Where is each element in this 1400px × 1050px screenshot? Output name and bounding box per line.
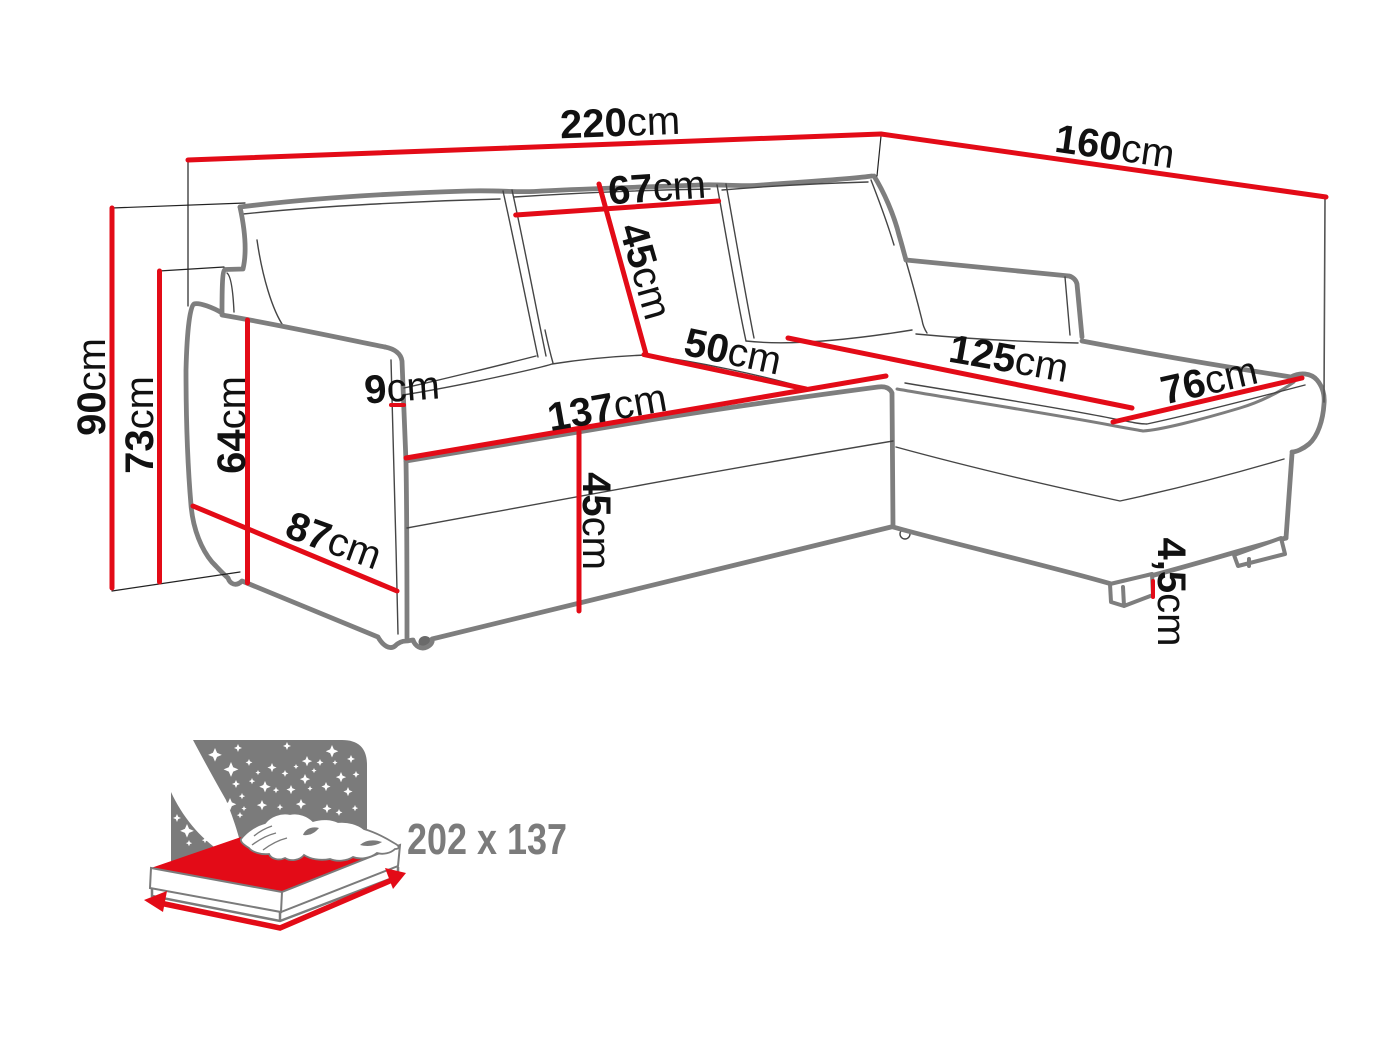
- svg-text:4,5cm: 4,5cm: [1149, 538, 1193, 647]
- svg-text:67cm: 67cm: [607, 163, 708, 214]
- svg-text:73cm: 73cm: [118, 376, 162, 474]
- svg-text:90cm: 90cm: [70, 338, 114, 436]
- svg-text:45cm: 45cm: [574, 472, 618, 570]
- svg-text:202 x 137: 202 x 137: [407, 815, 567, 864]
- svg-text:9cm: 9cm: [363, 363, 441, 412]
- svg-text:64cm: 64cm: [210, 376, 254, 474]
- svg-text:220cm: 220cm: [559, 99, 681, 147]
